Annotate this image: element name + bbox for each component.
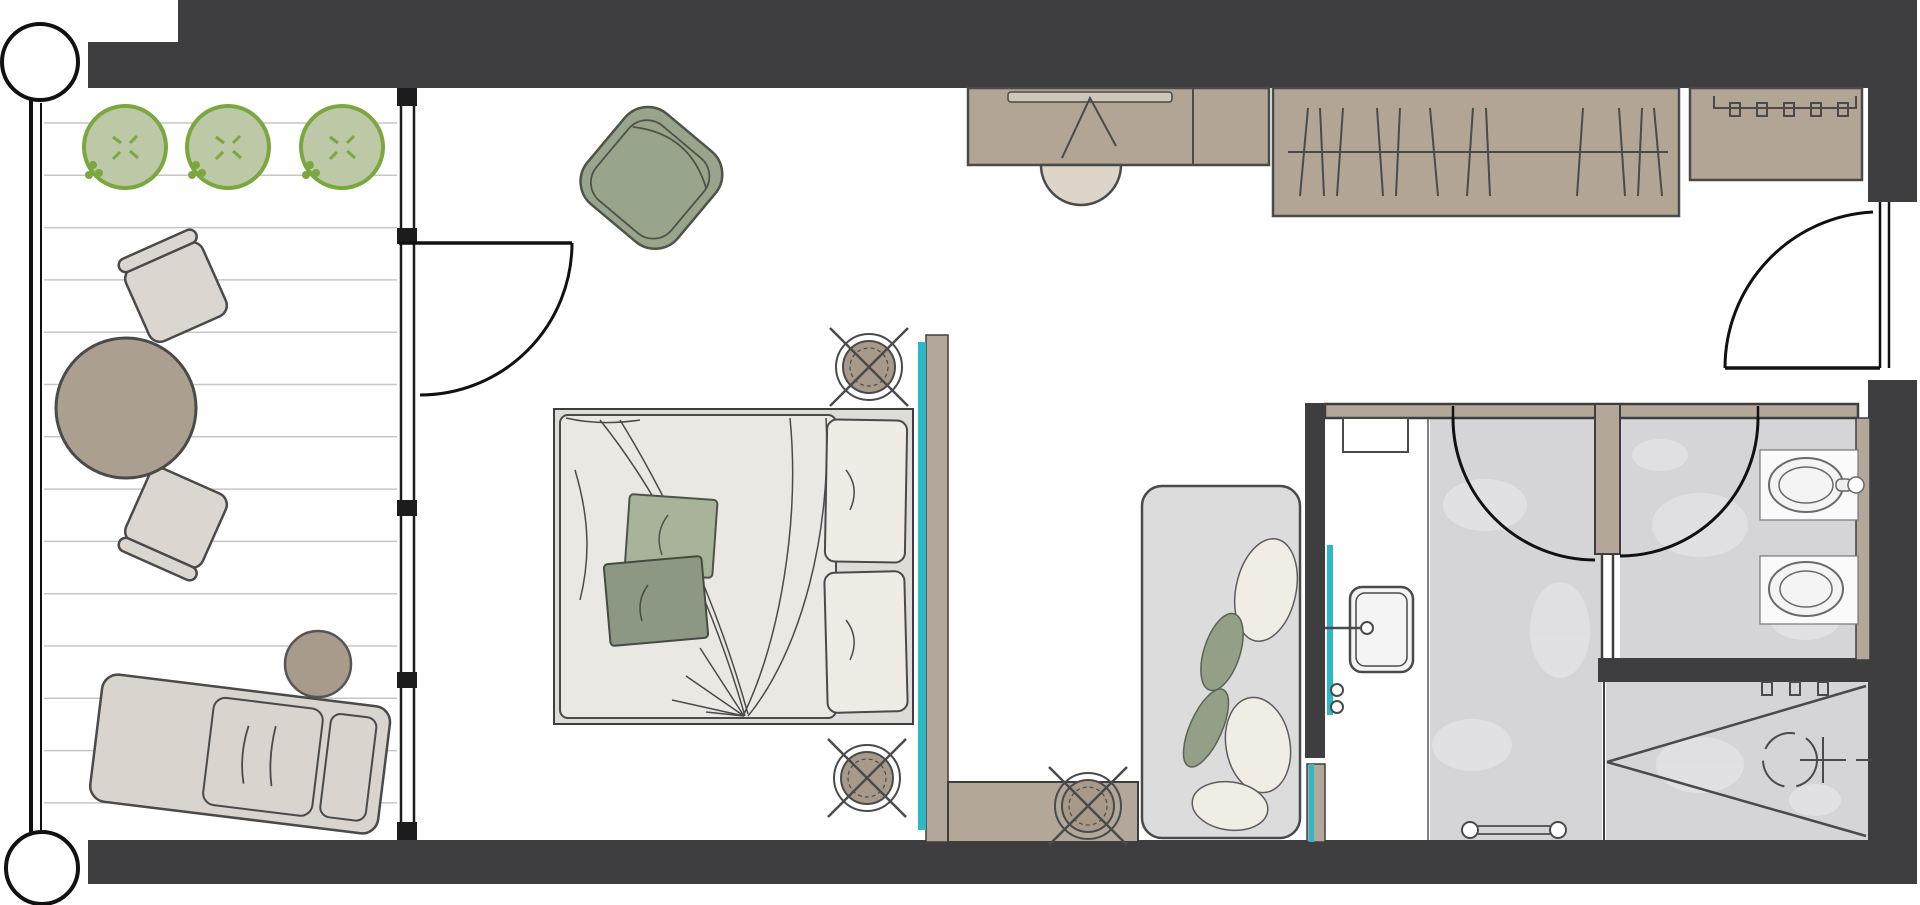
marble-patch [1530, 582, 1590, 678]
headboard-panel [926, 335, 948, 842]
armchair [568, 95, 734, 261]
outdoor-chair-bottom [116, 464, 230, 582]
planter-tree [84, 106, 166, 188]
entrance-door [1725, 202, 1889, 368]
vanity-knob [1331, 701, 1343, 713]
washbasin [1350, 587, 1413, 672]
tree-leaf-cluster [85, 171, 93, 179]
wall-right-upper [1868, 88, 1917, 202]
marble-patch [1632, 439, 1688, 471]
desk-stool [1041, 165, 1121, 205]
marble-patch [1656, 737, 1744, 793]
window-mullion [397, 672, 417, 688]
outdoor-round-table [56, 338, 196, 478]
wall-top [178, 0, 1917, 88]
outdoor-lounger [88, 673, 391, 835]
planter-trees [84, 106, 383, 188]
marble-patch [1432, 719, 1512, 771]
outdoor-chair-top [116, 227, 230, 345]
bedroom-door-swing-arc [420, 243, 572, 395]
tree-leaf-cluster [302, 171, 310, 179]
console-body [1690, 88, 1862, 180]
bidet-faucet-knob [1848, 477, 1864, 493]
wall-wc-separator [1598, 658, 1868, 682]
planter-tree [301, 106, 383, 188]
tree-leaf-cluster [312, 169, 320, 177]
faucet-control [1361, 622, 1373, 634]
wardrobe [1273, 88, 1679, 216]
bench-daybed [1142, 486, 1306, 838]
outdoor-side-table [285, 631, 351, 697]
wall-bottom [88, 840, 1917, 884]
luggage-console [1690, 88, 1862, 180]
cushion-dark-sage [604, 556, 709, 646]
wall-right-lower [1868, 380, 1917, 842]
wall-top-left-step [88, 42, 180, 88]
tree-leaf-cluster [89, 161, 97, 169]
lounger-body [88, 673, 391, 835]
floor-plan [0, 0, 1920, 905]
wall-bathroom-left [1305, 403, 1325, 758]
tree-leaf-cluster [192, 161, 200, 169]
desk [968, 88, 1269, 205]
vanity [1325, 418, 1413, 713]
column-bottom [6, 832, 78, 904]
wall-wc-partition [1595, 404, 1620, 554]
window-mullion [397, 500, 417, 516]
marble-patch [1789, 784, 1841, 816]
window-mullion [397, 88, 417, 106]
headboard-glass-strip [918, 342, 926, 830]
window-wall [397, 88, 417, 840]
double-bed [554, 409, 913, 724]
ceiling-lamp [830, 328, 908, 406]
vanity-knob [1331, 684, 1343, 696]
towel-rail-end [1462, 822, 1478, 838]
towel-rail-end [1550, 822, 1566, 838]
column-top [2, 24, 78, 100]
tree-leaf-cluster [188, 171, 196, 179]
bidet [1769, 458, 1843, 512]
bedroom-door [399, 243, 572, 395]
entrance-door-swing-arc [1725, 212, 1873, 368]
ceiling-lamp [828, 739, 906, 817]
planter-tree [187, 106, 269, 188]
tree-leaf-cluster [306, 161, 314, 169]
marble-patch [1443, 479, 1527, 531]
vanity-shelf-niche [1343, 418, 1408, 452]
window-mullion [397, 822, 417, 840]
tree-leaf-cluster [198, 169, 206, 177]
lower-glass-strip [1309, 764, 1314, 842]
pillow [824, 571, 908, 713]
wall-bathroom-top [1325, 404, 1858, 418]
tree-leaf-cluster [95, 169, 103, 177]
pillow [825, 419, 907, 562]
balcony-railing [31, 100, 41, 832]
